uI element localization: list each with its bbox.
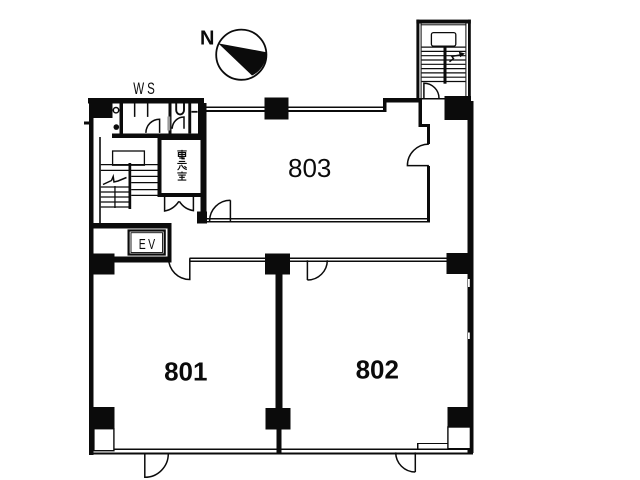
svg-text:803: 803 — [288, 153, 331, 183]
svg-text:WS: WS — [133, 80, 158, 99]
svg-text:N: N — [200, 28, 214, 50]
svg-text:EV: EV — [139, 235, 158, 252]
svg-text:801: 801 — [164, 356, 207, 386]
svg-text:802: 802 — [356, 355, 399, 385]
